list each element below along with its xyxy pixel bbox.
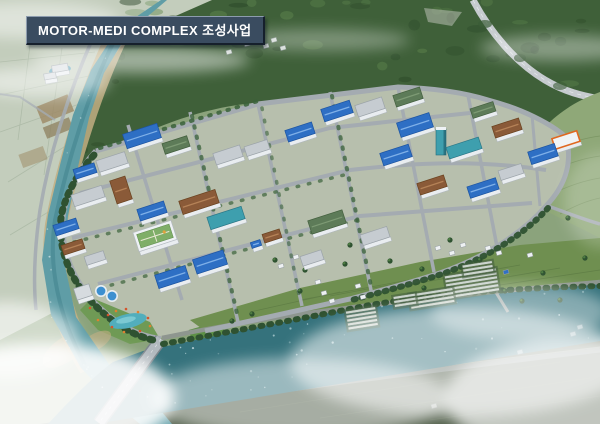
tree [421,285,426,290]
tree [582,255,587,260]
flower-shrub [107,314,110,317]
title-banner-text: MOTOR-MEDI COMPLEX 조성사업 [38,23,252,38]
tree [540,270,545,275]
tree [297,288,302,293]
rendering-canvas: MOTOR-MEDI COMPLEX 조성사업 [0,0,600,424]
flower-shrub [149,325,152,328]
flower-shrub [89,307,92,310]
flower-shrub [137,311,140,314]
flower-shrub [115,310,118,313]
flower-shrub [123,331,126,334]
tree [229,318,234,323]
tree [347,242,352,247]
flower-shrub [97,319,100,322]
tree [447,237,452,242]
tree [419,266,424,271]
aerial-rendering [0,0,600,424]
flower-shrub [139,330,142,333]
flower-shrub [147,317,150,320]
flower-shrub [125,308,128,311]
building-tower [436,127,446,155]
tree [387,258,392,263]
tree [249,311,254,316]
title-banner: MOTOR-MEDI COMPLEX 조성사업 [26,16,265,45]
tree [342,261,347,266]
flower-shrub [111,326,114,329]
tree [272,257,277,262]
